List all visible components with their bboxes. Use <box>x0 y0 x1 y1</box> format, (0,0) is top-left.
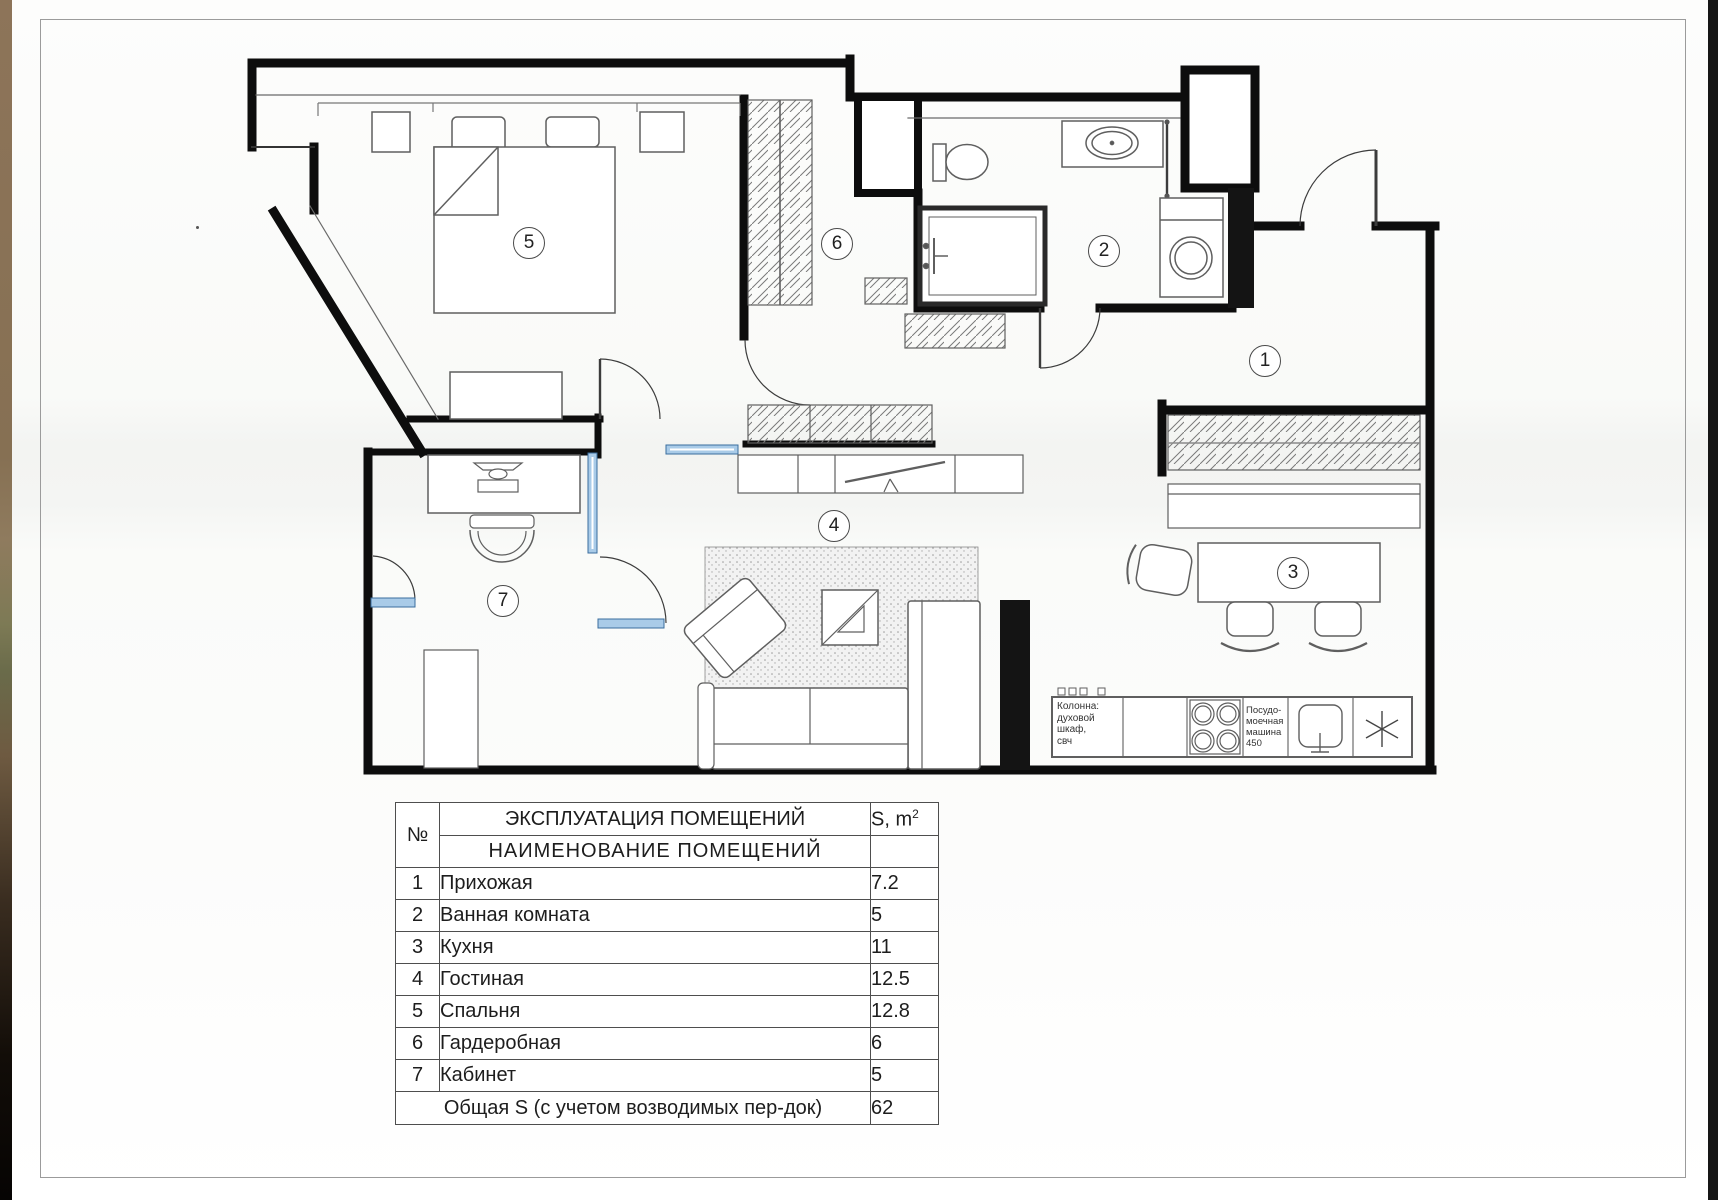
wall-pier-kitchen <box>1000 600 1030 770</box>
room-label-3: 3 <box>1277 557 1309 589</box>
entry-storage <box>1168 415 1420 528</box>
washing-machine <box>1160 198 1223 297</box>
room-label-7: 7 <box>487 585 519 617</box>
shoe-bench <box>1168 484 1420 528</box>
dining-chair <box>1315 602 1361 636</box>
room-area: 12.8 <box>871 996 939 1028</box>
table-row: 1 Прихожая 7.2 <box>396 868 939 900</box>
annotation-oven-column: Колонна: духовой шкаф, свч <box>1057 701 1121 747</box>
living-furniture <box>682 547 980 769</box>
table-row: 2 Ванная комната 5 <box>396 900 939 932</box>
room-name: Спальня <box>440 996 871 1028</box>
number-column-header: № <box>396 803 440 868</box>
office-closet-door-arc <box>373 556 415 600</box>
room-label-6: 6 <box>821 228 853 260</box>
office-glass-door-arc <box>600 557 666 623</box>
dresser <box>450 372 562 419</box>
table-row: 7 Кабинет 5 <box>396 1060 939 1092</box>
room-name: Ванная комната <box>440 900 871 932</box>
room-area: 11 <box>871 932 939 964</box>
name-column-header: НАИМЕНОВАНИЕ ПОМЕЩЕНИЙ <box>440 836 871 868</box>
table-subheader-row: НАИМЕНОВАНИЕ ПОМЕЩЕНИЙ <box>396 836 939 868</box>
table-row: 5 Спальня 12.8 <box>396 996 939 1028</box>
room-name: Прихожая <box>440 868 871 900</box>
floor-plan-drawing <box>240 40 1450 800</box>
bookshelf <box>424 650 478 768</box>
room-name: Кухня <box>440 932 871 964</box>
bedroom-furniture <box>318 103 740 419</box>
table-title-row: № ЭКСПЛУАТАЦИЯ ПОМЕЩЕНИЙ S, m2 <box>396 803 939 836</box>
bathroom-door-arc <box>1040 308 1100 368</box>
room-name: Гардеробная <box>440 1028 871 1060</box>
dining-chair-left <box>1124 541 1194 597</box>
entry-door-arc <box>1300 150 1376 226</box>
wardrobe-door-arc <box>745 340 810 405</box>
office-chair <box>470 530 534 562</box>
pillow <box>546 117 599 147</box>
room-name: Гостиная <box>440 964 871 996</box>
dining-chair <box>1227 602 1273 636</box>
hall-closet-row <box>748 405 932 443</box>
room-label-4: 4 <box>818 510 850 542</box>
annotation-dishwasher: Посудо- моечная машина 450 <box>1246 705 1288 749</box>
table-row: 4 Гостиная 12.5 <box>396 964 939 996</box>
room-area: 12.5 <box>871 964 939 996</box>
table-row: 6 Гардеробная 6 <box>396 1028 939 1060</box>
shaft-duct <box>1185 70 1255 188</box>
glass-door-open-leaf <box>598 619 664 628</box>
toilet-tank <box>933 144 946 181</box>
row-number: 4 <box>396 964 440 996</box>
row-number: 3 <box>396 932 440 964</box>
glass-closet-leaf <box>371 598 415 607</box>
area-column-header: S, m2 <box>871 803 939 836</box>
room-area: 6 <box>871 1028 939 1060</box>
row-number: 6 <box>396 1028 440 1060</box>
area-header-base: S, m <box>871 808 912 830</box>
area-header-empty <box>871 836 939 868</box>
row-number: 5 <box>396 996 440 1028</box>
row-number: 7 <box>396 1060 440 1092</box>
total-area-value: 62 <box>871 1092 939 1125</box>
sofa-chaise <box>908 601 980 769</box>
area-header-sup: 2 <box>912 807 919 821</box>
room-label-2: 2 <box>1088 235 1120 267</box>
table-title: ЭКСПЛУАТАЦИЯ ПОМЕЩЕНИЙ <box>440 803 871 836</box>
stray-dot <box>196 226 199 229</box>
bedroom-door-arc <box>600 359 660 419</box>
page-canvas: 1 2 3 4 5 6 7 Колонна: духовой шкаф, свч… <box>0 0 1718 1200</box>
room-area: 7.2 <box>871 868 939 900</box>
room-area: 5 <box>871 900 939 932</box>
wardrobe-cabinet <box>865 278 907 304</box>
sofa-armrest <box>698 683 714 769</box>
room-label-5: 5 <box>513 227 545 259</box>
table-total-row: Общая S (с учетом возводимых пер-док) 62 <box>396 1092 939 1125</box>
nightstand <box>372 112 410 152</box>
screen-edge-strip <box>1708 0 1718 1200</box>
table-row: 3 Кухня 11 <box>396 932 939 964</box>
total-label: Общая S (с учетом возводимых пер-док) <box>396 1092 871 1125</box>
bathroom-fixtures <box>920 121 1223 304</box>
hallway-storage <box>738 314 1023 493</box>
row-number: 2 <box>396 900 440 932</box>
room-schedule-table: № ЭКСПЛУАТАЦИЯ ПОМЕЩЕНИЙ S, m2 НАИМЕНОВА… <box>395 802 939 1125</box>
toilet-bowl <box>946 145 988 180</box>
hall-console <box>905 314 1005 348</box>
wall-pier-entry <box>1228 188 1254 308</box>
room-label-1: 1 <box>1249 345 1281 377</box>
keyboard <box>478 480 518 492</box>
row-number: 1 <box>396 868 440 900</box>
desktop-photo-edge <box>0 0 12 1200</box>
room-name: Кабинет <box>440 1060 871 1092</box>
nightstand <box>640 112 684 152</box>
room-area: 5 <box>871 1060 939 1092</box>
vent-duct <box>858 97 918 193</box>
